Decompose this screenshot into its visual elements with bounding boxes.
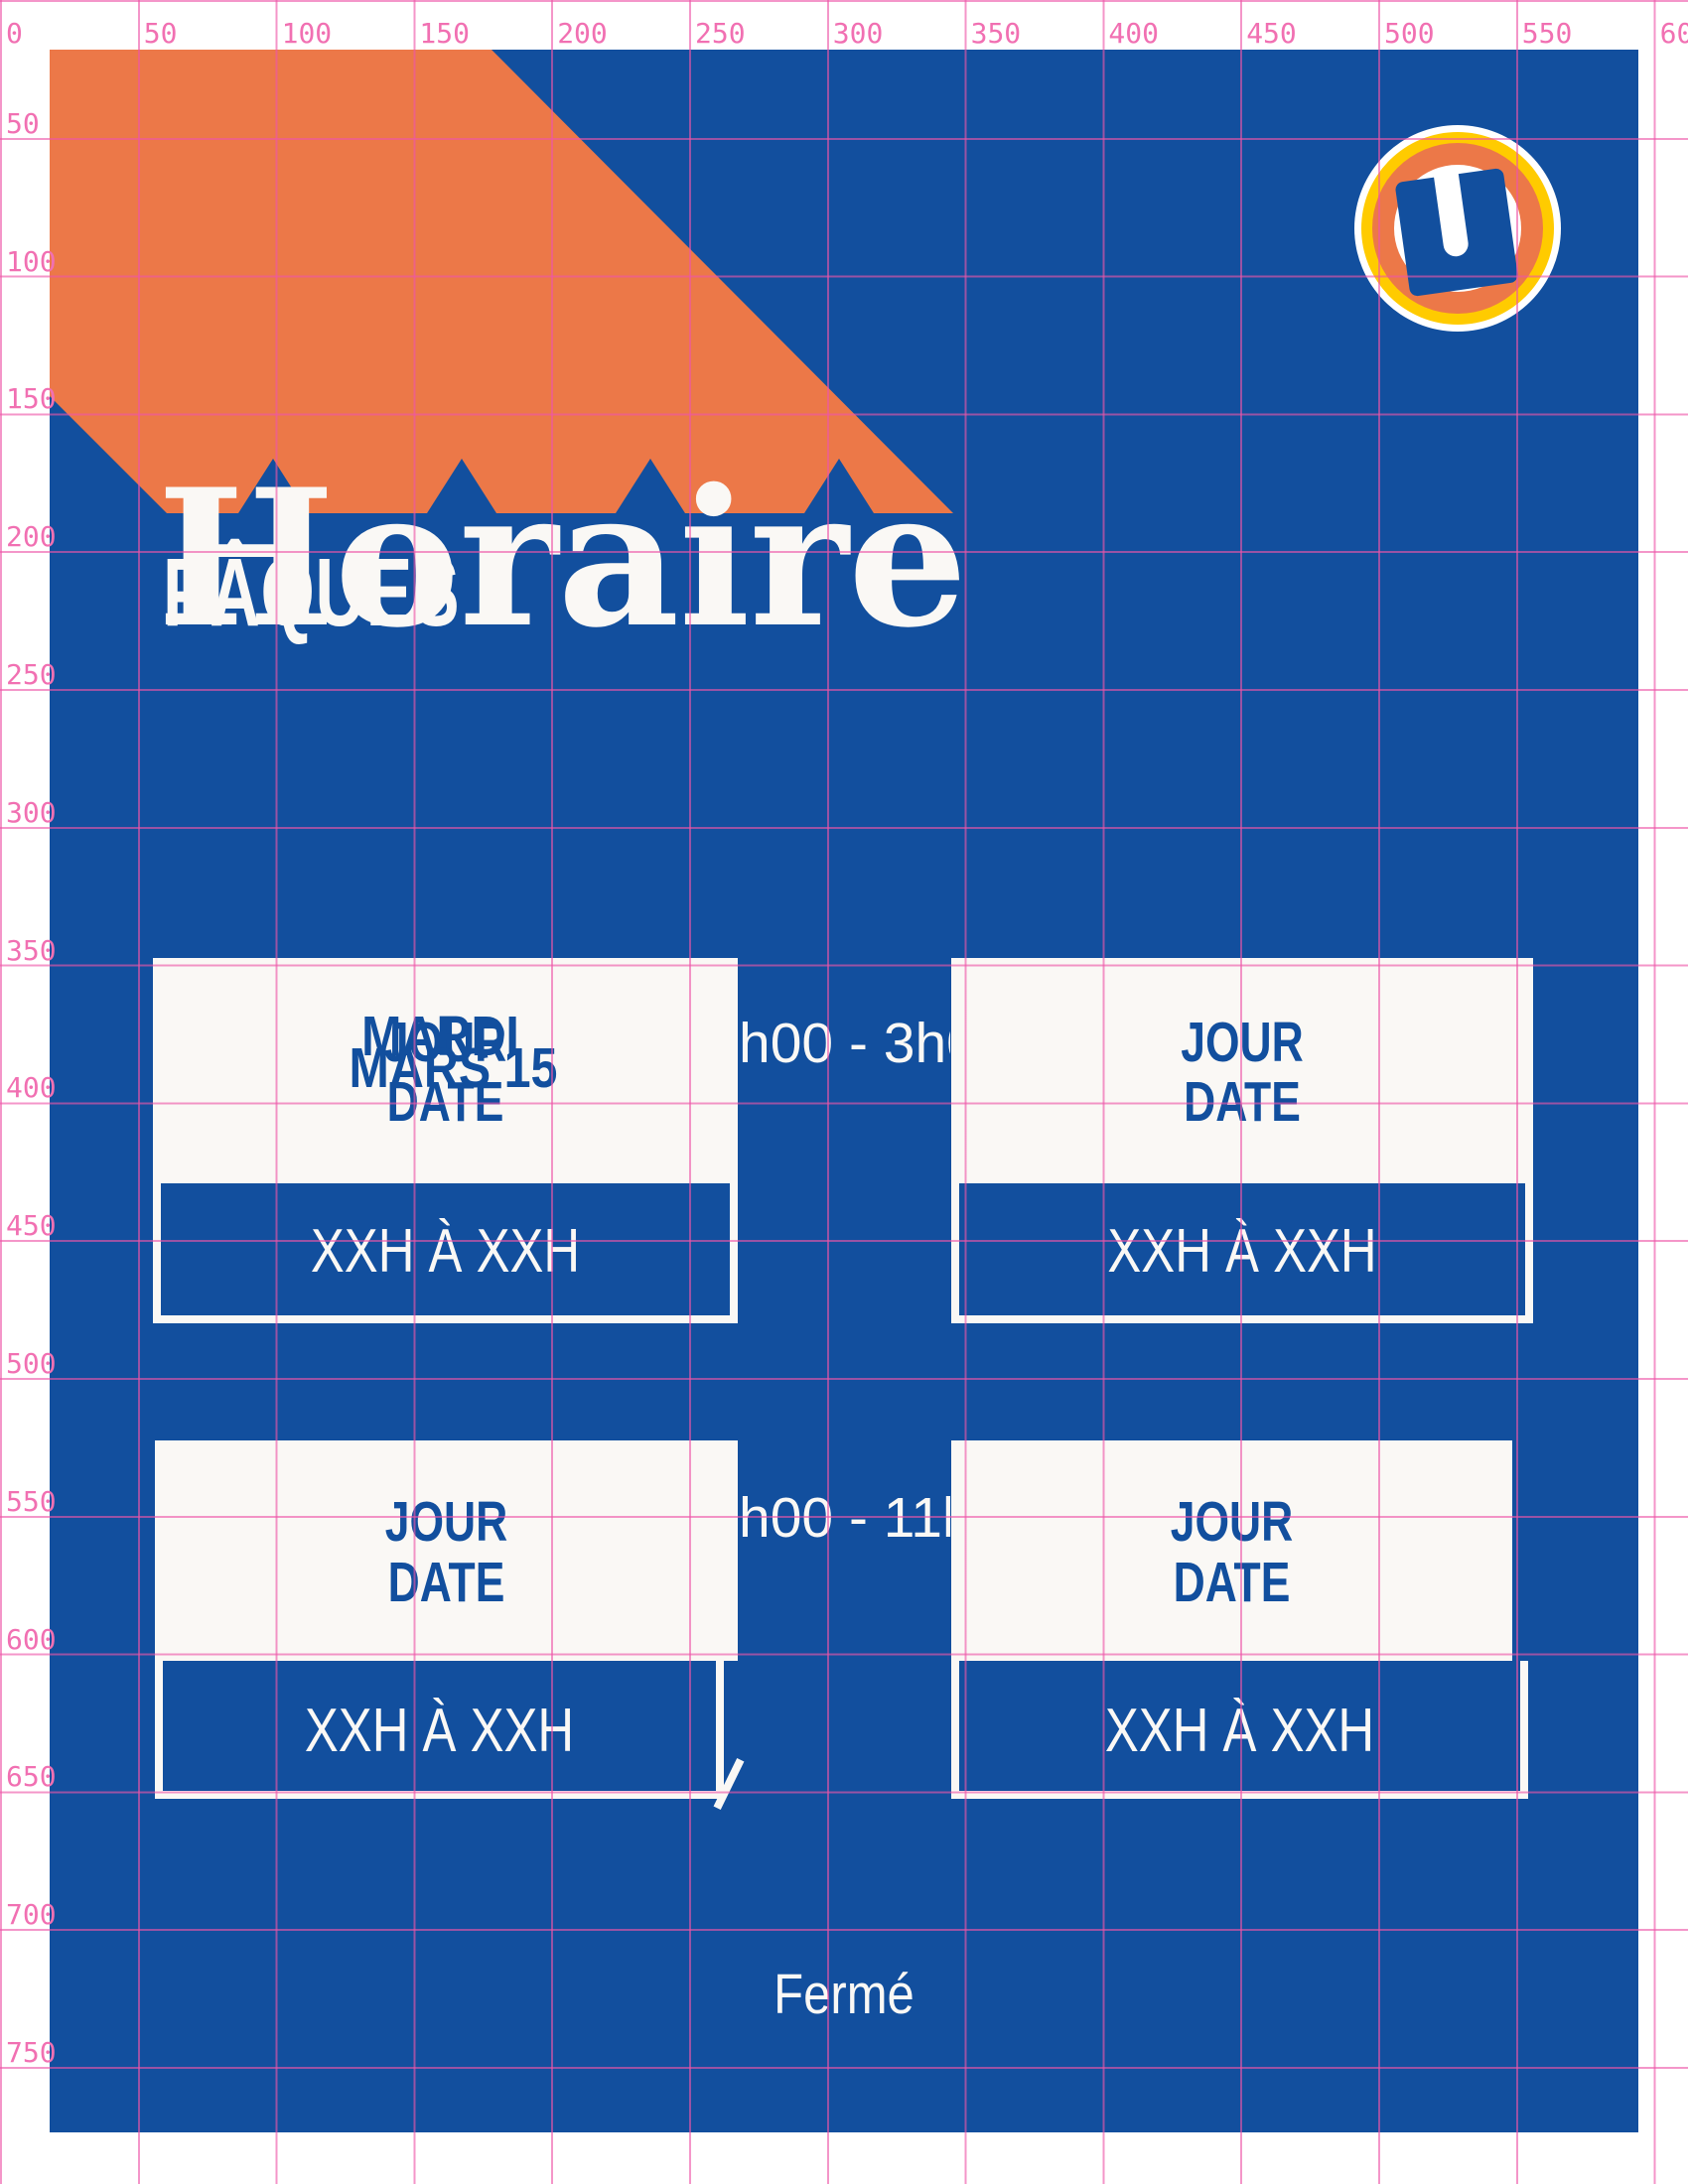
page-subtitle[interactable]: PÂQUES — [163, 544, 460, 640]
ruler-label: 250 — [6, 661, 57, 689]
ruler-label: 200 — [557, 20, 608, 48]
ruler-label: 150 — [6, 385, 57, 413]
hours-band-4[interactable]: XXH À XXH — [951, 1661, 1528, 1799]
ruler-label: 650 — [6, 1763, 57, 1791]
design-canvas: Horaire PÂQUES JOUR MARDI MARS 15 DATE X… — [0, 0, 1688, 2184]
ruler-label: 400 — [1108, 20, 1159, 48]
hours-band-fill: XXH À XXH — [161, 1183, 730, 1315]
ruler-label: 400 — [6, 1074, 57, 1102]
ruler-label: 550 — [6, 1488, 57, 1516]
ruler-label: 150 — [419, 20, 470, 48]
hours-band-fill: XXH À XXH — [959, 1183, 1525, 1315]
hours-label[interactable]: XXH À XXH — [212, 1701, 666, 1762]
ruler-label: 300 — [6, 799, 57, 827]
ruler-label: 750 — [6, 2039, 57, 2067]
date-placeholder[interactable]: DATE — [217, 1074, 673, 1131]
time-fragment: h00 - 3h0 — [739, 1016, 950, 1072]
ruler-label: 0 — [6, 20, 23, 48]
hours-band-fill: XXH À XXH — [163, 1661, 716, 1791]
ruler-label: 500 — [6, 1350, 57, 1378]
ruler-label: 100 — [6, 248, 57, 276]
date-placeholder[interactable]: DATE — [219, 1555, 674, 1611]
ruler-label: 700 — [6, 1901, 57, 1929]
ruler-label: 200 — [6, 523, 57, 551]
hours-band-1[interactable]: XXH À XXH — [153, 1183, 738, 1323]
time-fragment: h00 - 11h — [739, 1490, 950, 1547]
ruler-label: 350 — [6, 937, 57, 965]
logo-u-slot — [1434, 172, 1470, 258]
ruler-label: 600 — [1660, 20, 1688, 48]
ruler-label: 450 — [6, 1212, 57, 1240]
ruler-label: 250 — [695, 20, 746, 48]
ruler-label: 300 — [833, 20, 884, 48]
ruler-label: 50 — [6, 110, 40, 138]
day-placeholder[interactable]: JOUR — [219, 1494, 674, 1551]
hours-band-fill: XXH À XXH — [959, 1661, 1520, 1791]
hours-label[interactable]: XXH À XXH — [212, 1221, 679, 1283]
date-placeholder[interactable]: DATE — [1015, 1074, 1469, 1131]
hours-label[interactable]: XXH À XXH — [1010, 1221, 1474, 1283]
u-ring-icon — [1394, 168, 1518, 297]
ruler-label: 450 — [1246, 20, 1297, 48]
day-placeholder[interactable]: JOUR — [1015, 1015, 1469, 1071]
poster-artboard[interactable]: Horaire PÂQUES JOUR MARDI MARS 15 DATE X… — [50, 50, 1638, 2132]
hours-band-3[interactable]: XXH À XXH — [155, 1661, 724, 1799]
ruler-label: 550 — [1522, 20, 1573, 48]
ruler-label: 100 — [282, 20, 333, 48]
ruler-label: 50 — [144, 20, 178, 48]
closed-label[interactable]: Fermé — [673, 1967, 1015, 2023]
hours-label[interactable]: XXH À XXH — [1010, 1701, 1470, 1762]
ruler-label: 350 — [971, 20, 1022, 48]
day-placeholder[interactable]: JOUR — [1013, 1494, 1451, 1551]
hours-band-2[interactable]: XXH À XXH — [951, 1183, 1533, 1323]
time-strip-row2[interactable]: h00 - 11h — [738, 1474, 950, 1558]
ruler-label: 600 — [6, 1626, 57, 1654]
time-strip-row1[interactable]: h00 - 3h0 — [738, 998, 950, 1083]
ruler-label: 500 — [1384, 20, 1435, 48]
date-placeholder[interactable]: DATE — [1013, 1555, 1451, 1611]
